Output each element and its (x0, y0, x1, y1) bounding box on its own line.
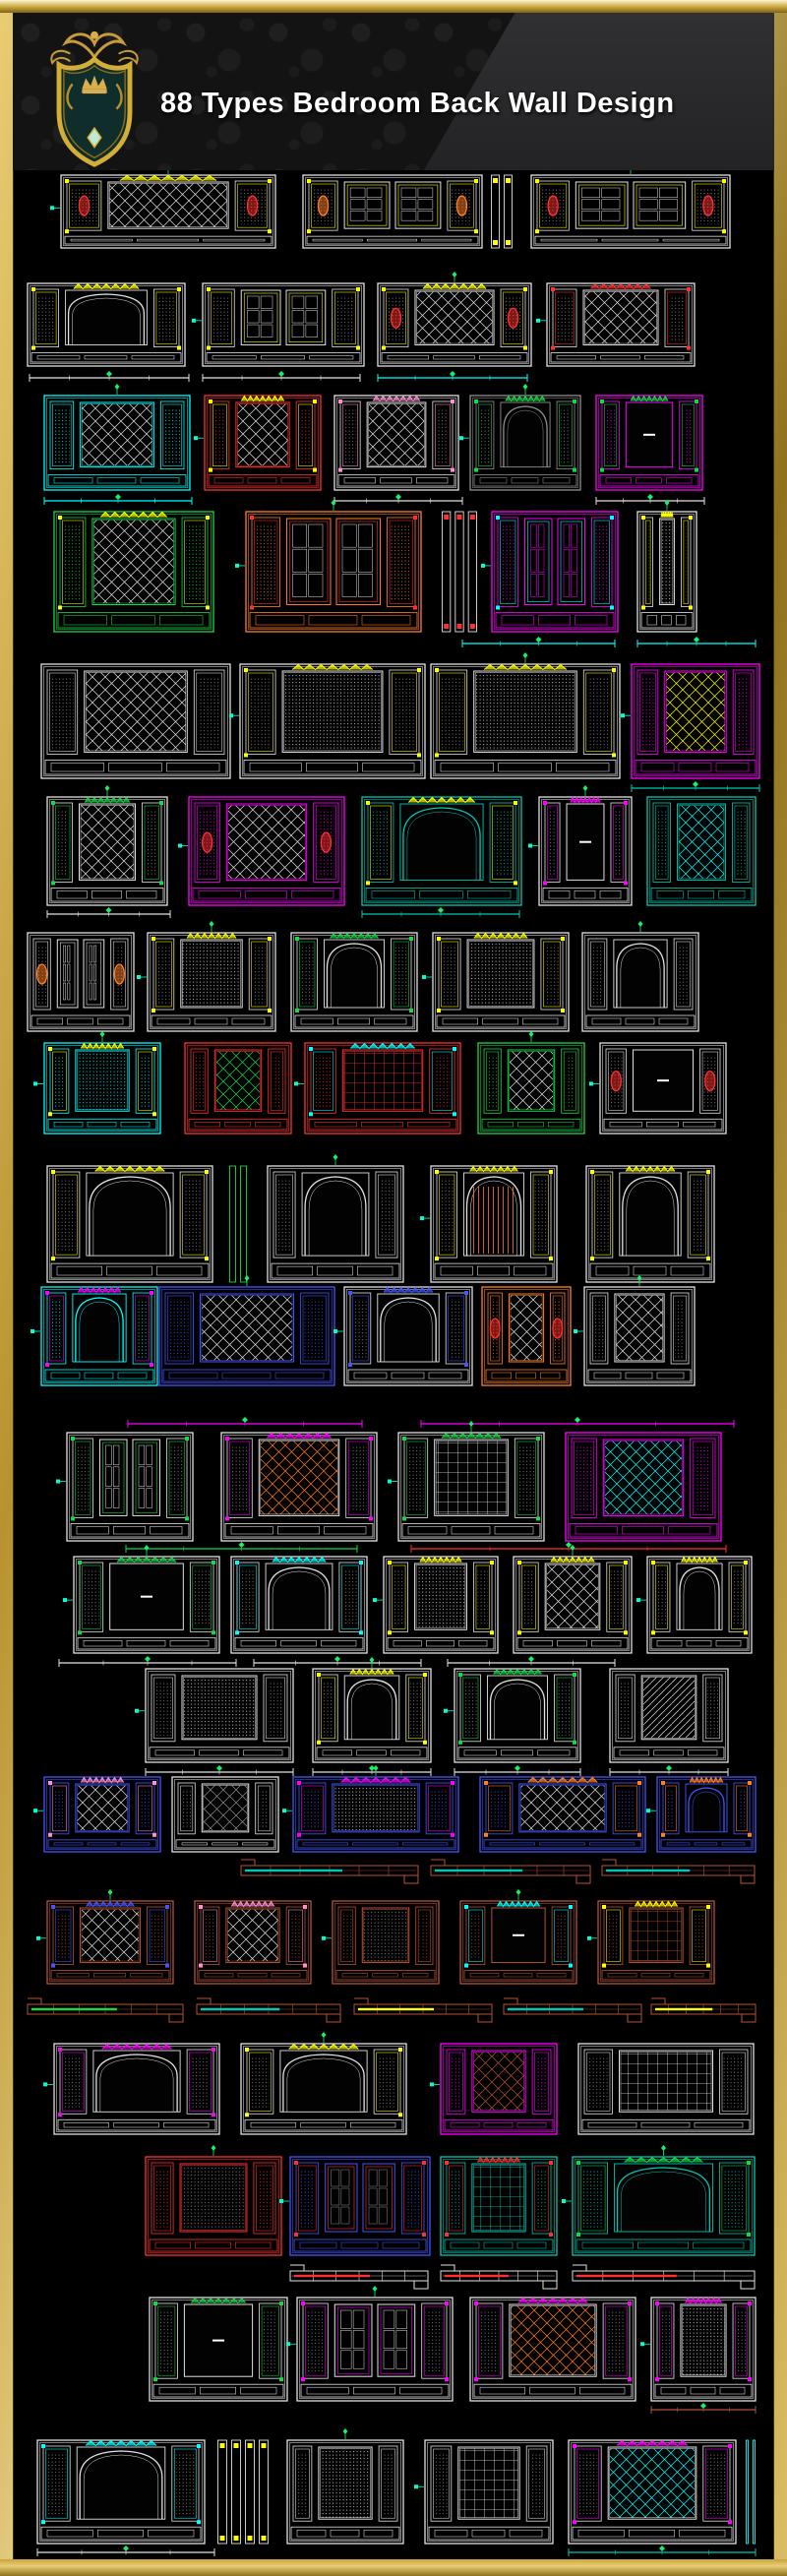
cad-wall-design (378, 272, 531, 366)
dimension-baseline (462, 637, 615, 647)
cad-wall-design (610, 1669, 728, 1762)
cad-wall-design (28, 933, 134, 1031)
cad-wall-design (33, 1031, 160, 1134)
cad-wall-design (441, 2157, 557, 2255)
dimension-baseline (569, 2545, 756, 2556)
dimension-baseline (334, 494, 462, 505)
dimension-baseline (454, 1765, 580, 1776)
dimension-baseline (59, 1656, 236, 1667)
section-profile-drawing (573, 2265, 755, 2289)
cad-wall-design (637, 500, 696, 632)
cad-wall-design (218, 2440, 269, 2544)
dimension-baseline (203, 371, 360, 382)
cad-wall-design (322, 1901, 439, 1984)
cad-wall-design (578, 2044, 754, 2134)
section-profile-drawing (290, 2265, 428, 2289)
cad-wall-design (287, 2428, 403, 2544)
cad-wall-design (536, 283, 695, 366)
cad-wall-design (50, 163, 275, 248)
cad-wall-design (294, 1043, 460, 1134)
cad-wall-design (37, 2440, 205, 2544)
cad-wall-design (172, 1777, 278, 1852)
cad-wall-design (150, 2298, 287, 2401)
cad-wall-design (30, 1287, 157, 1385)
poster-content: 88 Types Bedroom Back Wall Design (13, 13, 774, 2563)
cad-wall-design (569, 2440, 736, 2544)
section-profile-drawing (431, 1860, 590, 1883)
section-profile-drawing (197, 1998, 340, 2022)
cad-wall-design (528, 785, 632, 905)
cad-wall-design (303, 175, 482, 248)
dimension-baseline (44, 494, 192, 505)
dimension-baseline (632, 781, 759, 792)
dimension-baseline (313, 1765, 431, 1776)
cad-wall-design (36, 1889, 173, 1984)
cad-wall-design (178, 797, 344, 905)
cad-wall-design (481, 512, 618, 632)
cad-wall-design (460, 1889, 576, 1984)
cad-wall-design (459, 384, 580, 490)
cad-wall-design (586, 1166, 714, 1282)
cad-wall-design (562, 2145, 755, 2255)
dimension-baseline (37, 2545, 214, 2556)
cad-wall-design (636, 1557, 752, 1653)
cad-wall-design (478, 1031, 584, 1134)
cad-wall-design (192, 283, 364, 366)
cad-wall-design (492, 175, 513, 248)
cad-wall-design (414, 2440, 553, 2544)
cad-wall-design (422, 933, 569, 1031)
page-title: 88 Types Bedroom Back Wall Design (160, 88, 675, 120)
cad-wall-design (268, 1154, 403, 1282)
cad-wall-design (747, 2440, 756, 2544)
dimension-baseline (421, 1417, 734, 1428)
cad-wall-design (470, 2298, 636, 2401)
cad-wall-design (43, 2044, 219, 2134)
cad-wall-design (221, 1433, 377, 1541)
dimension-baseline (146, 1765, 293, 1776)
cad-wall-design (195, 1901, 311, 1984)
cad-wall-design (286, 2286, 453, 2401)
poster: 88 Types Bedroom Back Wall Design (0, 0, 787, 2576)
cad-wall-design (241, 2032, 406, 2134)
cad-wall-design (621, 664, 759, 778)
dimension-baseline (610, 1765, 728, 1776)
cad-wall-design (44, 384, 190, 490)
cad-wall-design (640, 2298, 756, 2401)
cad-wall-design (373, 1557, 498, 1653)
cad-wall-design (431, 652, 620, 778)
section-profile-drawing (28, 1998, 183, 2022)
cad-wall-design (388, 1421, 544, 1541)
cad-wall-design (279, 2157, 430, 2255)
cad-wall-design (230, 1166, 247, 1282)
cad-wall-design (291, 933, 417, 1031)
cad-wall-design (194, 396, 321, 490)
dimension-baseline (448, 1656, 615, 1667)
cad-wall-design (482, 1287, 571, 1385)
cad-wall-design (443, 512, 477, 632)
section-profile-drawing (651, 1998, 756, 2022)
cad-wall-design (47, 1166, 212, 1282)
cad-wall-design (54, 512, 213, 632)
section-profile-drawing (354, 1998, 492, 2022)
dimension-baseline (596, 494, 704, 505)
dimension-baseline (651, 2403, 756, 2414)
cad-wall-design (444, 1669, 580, 1762)
cad-wall-design (574, 1275, 695, 1385)
cad-wall-design (587, 1901, 714, 1984)
cad-wall-design (420, 1166, 557, 1282)
cad-wall-design (47, 785, 167, 905)
cad-wall-design (646, 1777, 756, 1852)
dimension-baseline (637, 637, 756, 647)
cad-wall-design (647, 797, 756, 905)
cad-wall-design (334, 396, 458, 490)
cad-wall-design (229, 664, 425, 778)
dimension-baseline (254, 1656, 421, 1667)
section-profile-drawing (241, 1860, 418, 1883)
cad-wall-design (514, 1545, 632, 1653)
section-profile-drawing (504, 1998, 641, 2022)
cad-wall-design (596, 396, 702, 490)
dimension-baseline (30, 371, 189, 382)
cad-wall-design (56, 1433, 193, 1541)
dimension-baseline (411, 1542, 726, 1553)
cad-wall-design (589, 1043, 726, 1134)
cad-wall-design (333, 1287, 472, 1385)
cad-wall-design (41, 664, 230, 778)
header-banner: 88 Types Bedroom Back Wall Design (13, 13, 774, 170)
section-profile-drawing (441, 2265, 557, 2289)
cad-drawings-canvas (13, 13, 774, 2563)
section-profile-drawing (602, 1860, 755, 1883)
cad-wall-design (480, 1777, 645, 1852)
dimension-baseline (126, 1542, 357, 1553)
cad-wall-design (235, 500, 421, 632)
cad-wall-design (430, 2044, 557, 2134)
cad-wall-design (362, 797, 521, 905)
cad-wall-design (531, 163, 730, 248)
cad-wall-design (28, 283, 185, 366)
cad-wall-design (33, 1777, 160, 1852)
cad-wall-design (137, 921, 275, 1031)
dimension-baseline (128, 1417, 362, 1428)
cad-wall-design (146, 2145, 281, 2255)
dimension-baseline (362, 907, 519, 918)
cad-wall-design (135, 1669, 293, 1762)
cad-wall-design (63, 1545, 219, 1653)
royal-crest-shield-icon (34, 25, 154, 168)
cad-wall-design (582, 921, 698, 1031)
cad-wall-design (313, 1657, 431, 1762)
cad-wall-design (231, 1557, 367, 1653)
cad-wall-design (282, 1765, 458, 1852)
dimension-baseline (378, 371, 527, 382)
cad-wall-design (185, 1043, 291, 1134)
cad-wall-design (159, 1275, 334, 1385)
cad-wall-design (566, 1433, 721, 1541)
dimension-baseline (47, 907, 170, 918)
